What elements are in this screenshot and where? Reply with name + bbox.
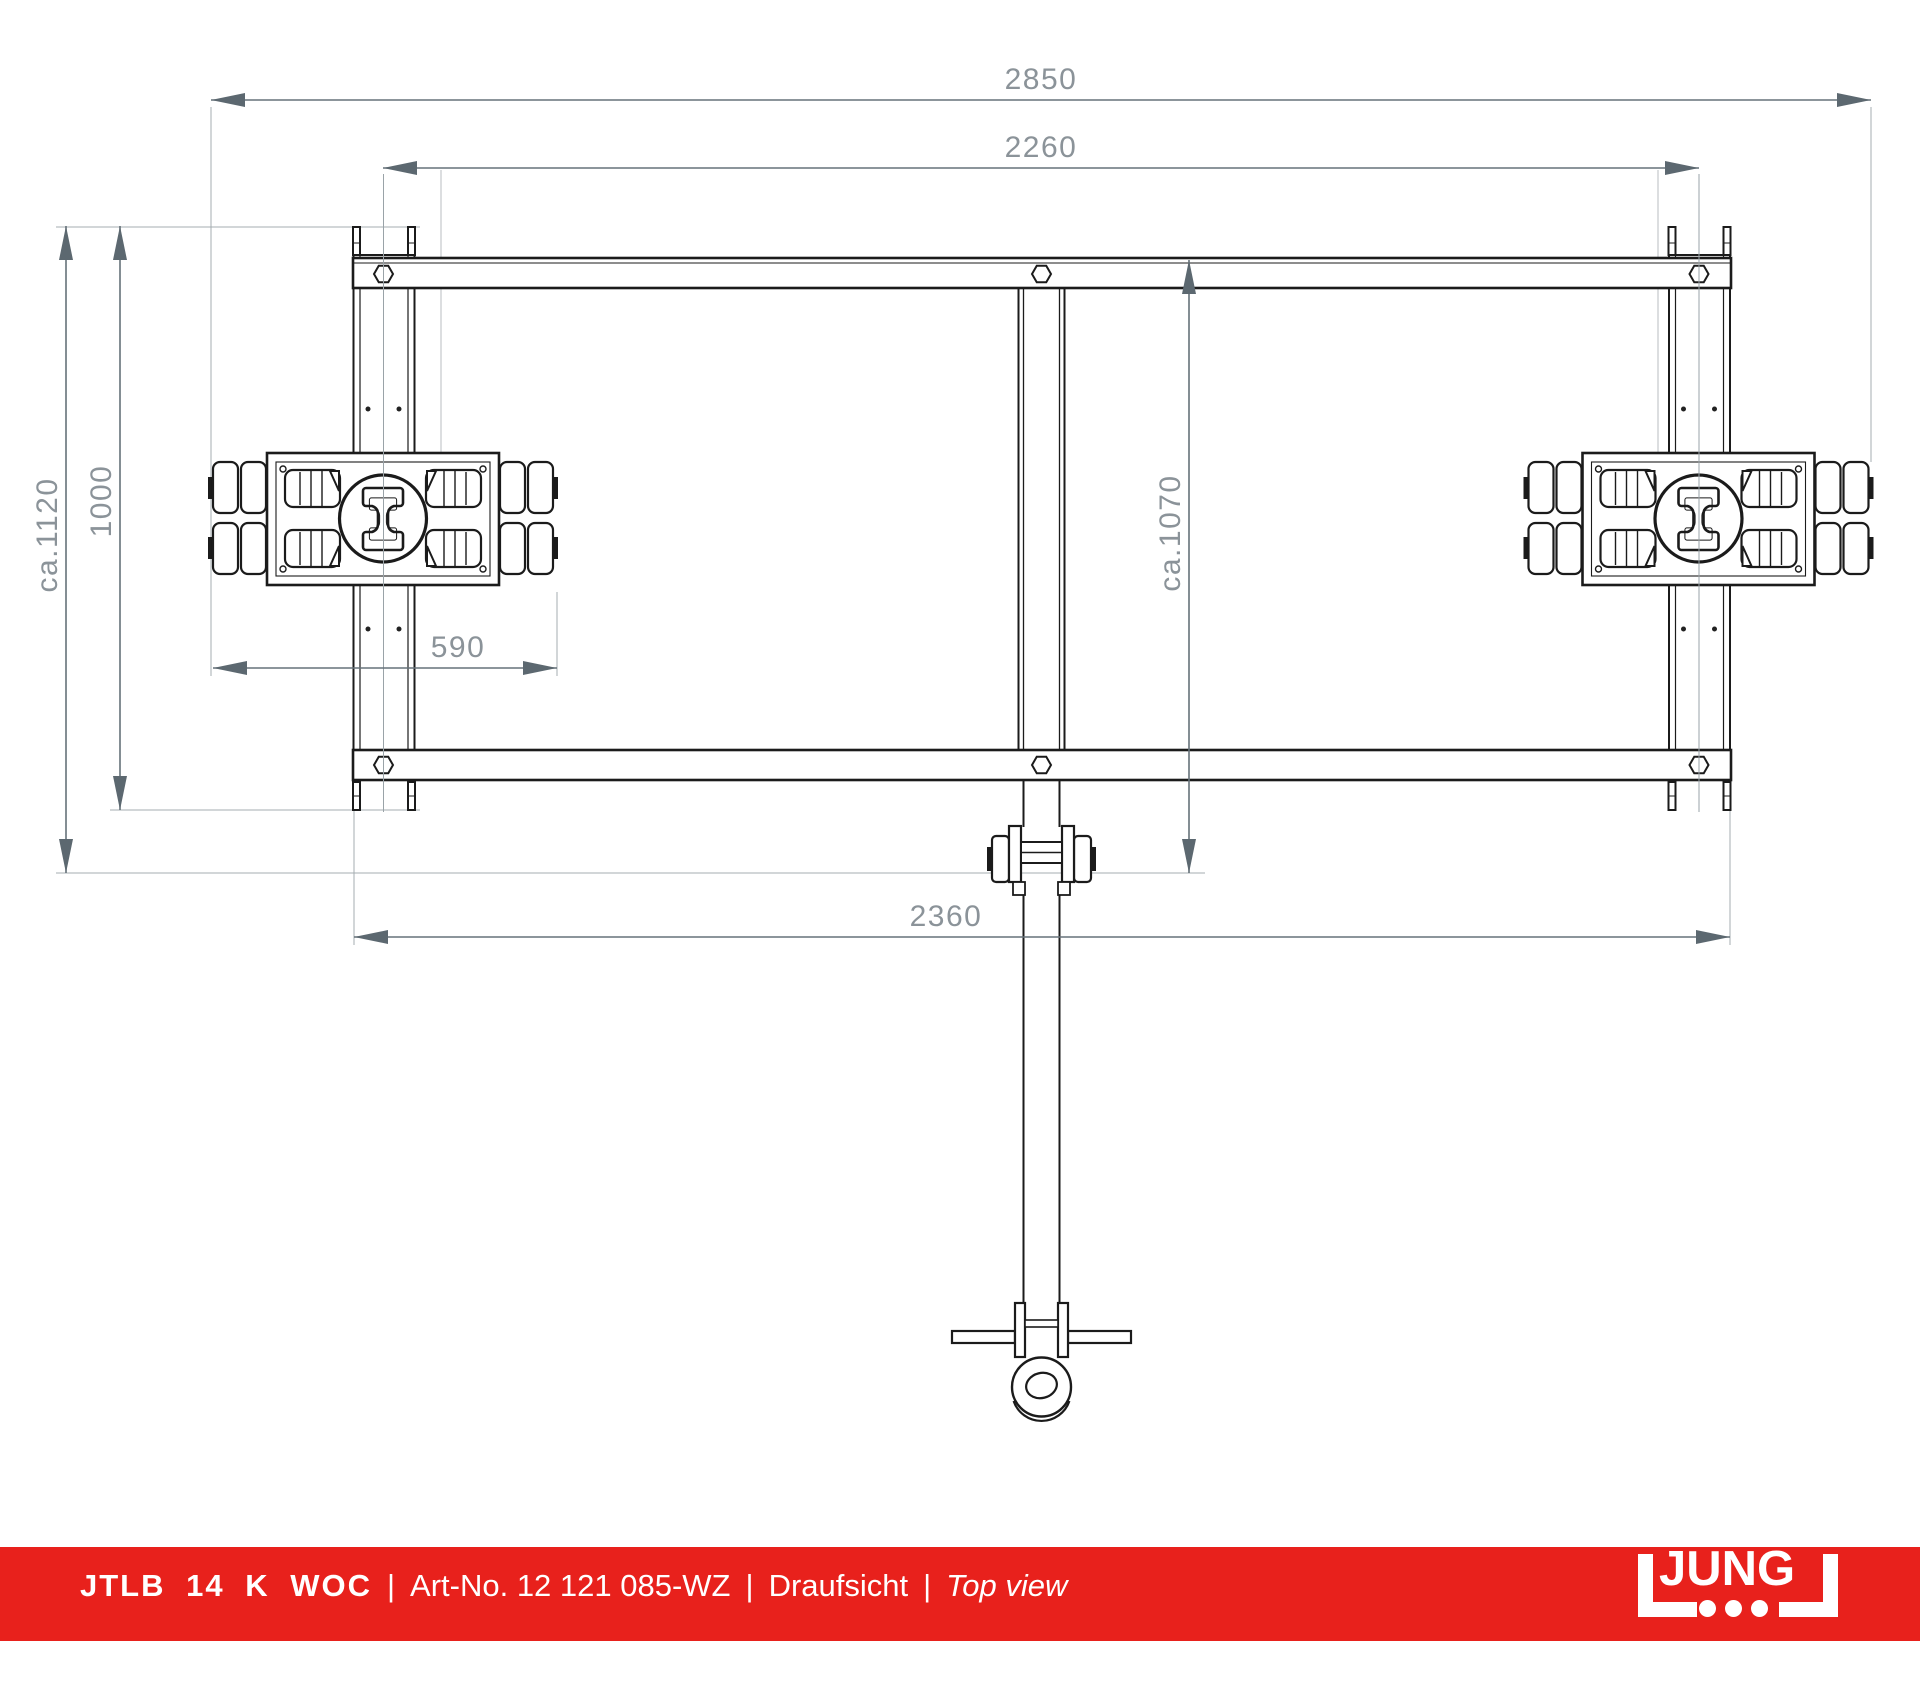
drawbar [952,780,1131,1421]
dimension-rail-length: 1000 [85,226,127,810]
logo-text: JUNG [1659,1541,1795,1597]
drawing-page: 2850 2260 ca.1120 1000 ca.1070 590 2360 [0,0,1920,1705]
model-designation: JTLB 14 K WOC [80,1568,372,1604]
dim-label-590: 590 [431,631,486,664]
dim-label-2850: 2850 [1005,63,1078,96]
clevis-pivot [987,826,1096,895]
view-label-en: Top view [946,1568,1067,1604]
drawbar-handle [952,1303,1131,1357]
technical-drawing: 2850 2260 ca.1120 1000 ca.1070 590 2360 [0,0,1920,1547]
separator: | [731,1568,769,1604]
dimension-overall-width: ca.1120 [31,226,73,873]
separator: | [908,1568,946,1604]
hex-bolts [374,266,1709,773]
view-label-de: Draufsicht [769,1568,909,1604]
jung-logo: JUNG [1638,1553,1838,1619]
dimension-overall-length: 2850 [211,63,1871,107]
title-text: JTLB 14 K WOC | Art-No. 12 121 085-WZ | … [80,1568,1067,1604]
article-number: Art-No. 12 121 085-WZ [410,1568,730,1604]
logo-dots-icon [1699,1600,1768,1617]
title-bar: JTLB 14 K WOC | Art-No. 12 121 085-WZ | … [0,1547,1920,1641]
dimension-roller-unit-length: 590 [213,631,557,675]
separator: | [372,1568,410,1604]
center-member [1019,288,1065,750]
dimension-rail-spacing: 2260 [383,131,1699,175]
dim-label-2360: 2360 [910,900,983,933]
dim-label-1000: 1000 [85,465,118,538]
dim-label-ca1070: ca.1070 [1154,474,1187,591]
tow-eye [1012,1358,1071,1421]
dim-label-ca1120: ca.1120 [31,477,64,592]
dimension-frame-length: 2360 [354,900,1730,944]
logo-right-bracket-icon [1779,1554,1838,1617]
dim-label-2260: 2260 [1005,131,1078,164]
